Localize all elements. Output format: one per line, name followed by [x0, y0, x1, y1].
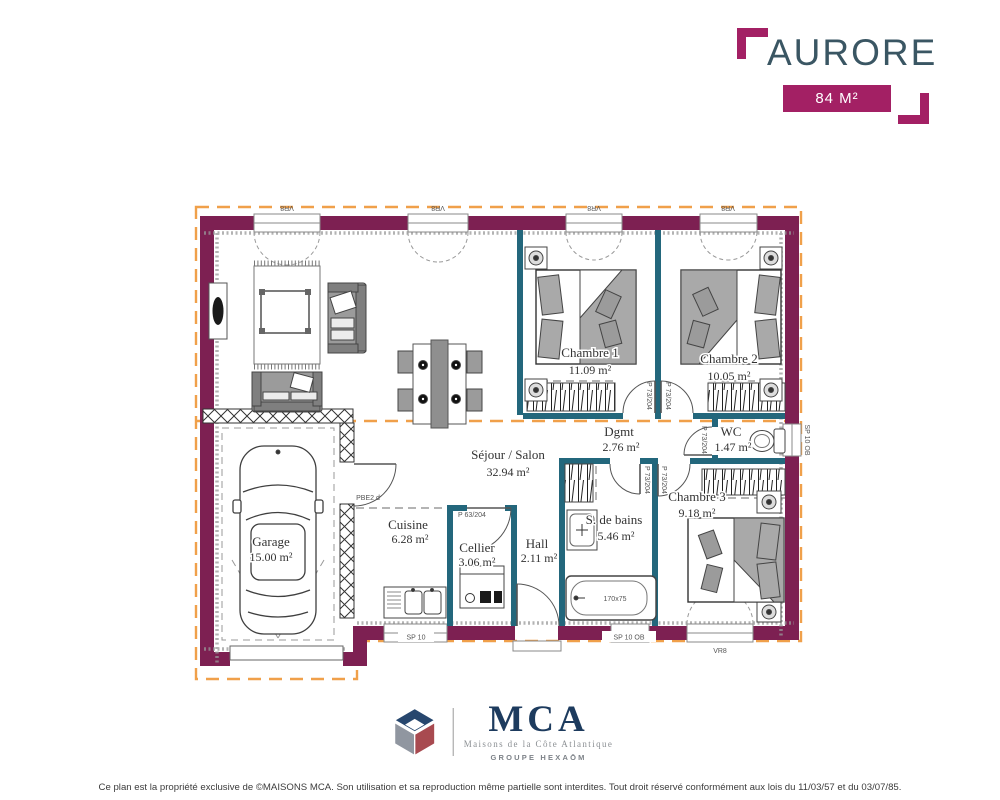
chambre1-furniture [525, 247, 636, 401]
window-label: SP 10 OB [803, 424, 810, 455]
area-garage: 15.00 m² [250, 550, 293, 564]
area-sejour: 32.94 m² [487, 465, 530, 479]
area-wc: 1.47 m² [715, 440, 752, 454]
label-sdb: S. de bains [586, 512, 643, 527]
garage-door-slab [230, 646, 343, 660]
coffee-table [261, 291, 309, 333]
mca-group: GROUPE HEXAŌM [490, 753, 586, 762]
label-dgmt: Dgmt [604, 424, 634, 439]
toilet [750, 429, 785, 453]
area-chambre1: 11.09 m² [569, 363, 612, 377]
door-label: P 73/204 [664, 382, 671, 410]
window-label: VR8 [431, 204, 445, 211]
door-label: P 73/204 [643, 466, 650, 494]
label-garage: Garage [252, 534, 290, 549]
entry-step [513, 641, 561, 651]
window-label: VR8 [721, 204, 735, 211]
room-labels: Séjour / Salon 32.94 m² Chambre 1 11.09 … [250, 345, 758, 569]
door-label: P 73/204 [660, 466, 667, 494]
tv-console [213, 297, 224, 325]
logo-divider [453, 708, 454, 756]
sofa-horizontal [252, 372, 322, 412]
window-label: VR8 [713, 648, 727, 655]
floor-plan-svg: Séjour / Salon 32.94 m² Chambre 1 11.09 … [0, 0, 1000, 800]
mca-logo: MCA Maisons de la Côte Atlantique GROUPE… [387, 702, 614, 762]
label-chambre2: Chambre 2 [700, 351, 757, 366]
mca-subtitle: Maisons de la Côte Atlantique [464, 739, 614, 749]
label-cuisine: Cuisine [388, 517, 428, 532]
area-cellier: 3.06 m² [459, 555, 496, 569]
area-cuisine: 6.28 m² [392, 532, 429, 546]
door-label: P 63/204 [458, 512, 486, 519]
label-chambre3: Chambre 3 [668, 489, 725, 504]
window-label: SP 10 [407, 635, 426, 642]
mca-wordmark: MCA [488, 702, 588, 738]
label-wc: WC [721, 424, 742, 439]
window-label: VR8 [280, 204, 294, 211]
area-hall: 2.11 m² [521, 551, 558, 565]
area-chambre3: 9.18 m² [679, 506, 716, 520]
door-label: P 73/204 [700, 426, 707, 454]
label-hall: Hall [526, 536, 549, 551]
floor-plan-page: AURORE 84 M² [0, 0, 1000, 800]
label-chambre1: Chambre 1 [561, 345, 618, 360]
window-label: VR8 [587, 204, 601, 211]
area-dgmt: 2.76 m² [603, 440, 640, 454]
sofa-vertical [328, 283, 366, 353]
area-chambre2: 10.05 m² [708, 369, 751, 383]
label-sejour: Séjour / Salon [471, 447, 545, 462]
copyright-disclaimer: Ce plan est la propriété exclusive de ©M… [0, 782, 1000, 793]
kitchen-sink [384, 587, 446, 618]
dining-table [398, 340, 482, 428]
sejour-furniture [209, 263, 482, 428]
washing-machine [460, 566, 504, 608]
door-label: PBE2 d [356, 495, 380, 502]
bathtub-size-label: 170x75 [604, 596, 627, 603]
mca-cube-icon [387, 702, 443, 762]
label-cellier: Cellier [459, 540, 495, 555]
door-label: P 73/204 [645, 382, 652, 410]
window-label: SP 10 OB [613, 635, 644, 642]
area-sdb: 5.46 m² [598, 529, 635, 543]
